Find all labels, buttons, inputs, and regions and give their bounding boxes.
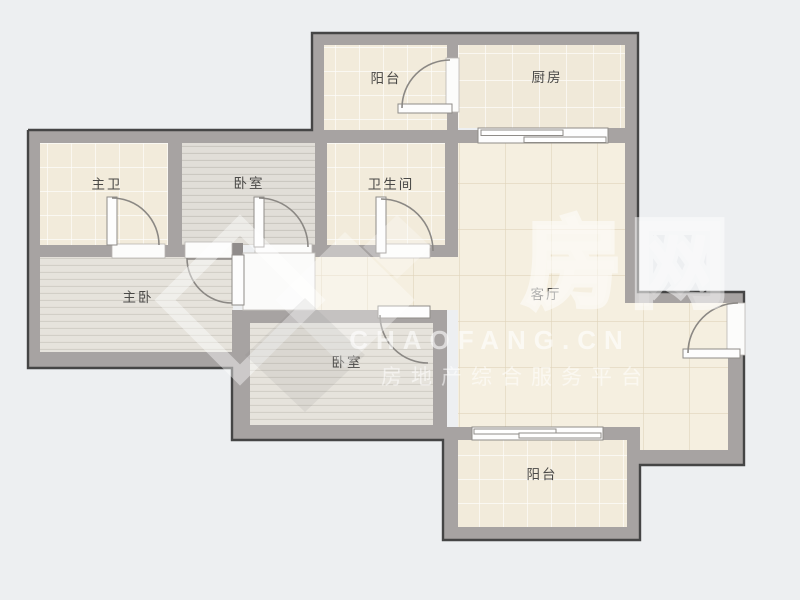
balcony-sliding-door [472, 427, 603, 440]
wall [443, 527, 640, 540]
balcony-top-door-leaf [398, 104, 452, 113]
slider-leaf [524, 137, 606, 143]
wall [627, 427, 640, 540]
watermark-domain: CHAOFANG.CN [349, 325, 631, 355]
floor-plan-page: 阳台 厨房 主卫 卧室 卫生间 客厅 主卧 卧室 阳台 房网 CHAOFANG.… [0, 0, 800, 600]
kitchen-sliding-door [478, 128, 608, 143]
wall [28, 130, 478, 143]
watermark-brand: 房网 [525, 212, 739, 318]
floor-plan-svg: 阳台 厨房 主卫 卧室 卫生间 客厅 主卧 卧室 阳台 房网 CHAOFANG.… [0, 0, 800, 600]
wall [445, 143, 458, 257]
wall [312, 33, 638, 45]
slider-leaf [481, 130, 563, 136]
wall [165, 245, 185, 257]
master-bedroom-door-leaf [232, 255, 244, 305]
room-label-balcony-top: 阳台 [371, 71, 402, 86]
room-label-bedroom-upper: 卧室 [234, 175, 265, 191]
room-label-bathroom: 卫生间 [368, 177, 415, 192]
room-label-kitchen: 厨房 [532, 70, 563, 85]
master-bathroom-doorway [112, 244, 165, 258]
kitchen-floor [458, 45, 625, 128]
slider-leaf [519, 433, 601, 438]
entry-door-leaf [683, 349, 740, 358]
room-label-master-bedroom: 主卧 [123, 290, 154, 305]
watermark-tagline: 房地产综合服务平台 [381, 366, 651, 389]
master-bathroom-door-leaf [107, 197, 117, 245]
wall [28, 352, 232, 368]
wall [608, 128, 638, 143]
balcony-top-floor [324, 45, 447, 130]
wall [443, 427, 458, 540]
wall [40, 245, 112, 257]
room-label-master-bathroom: 主卫 [92, 177, 123, 192]
master-bathroom-floor [40, 143, 168, 245]
room-label-balcony-lower: 阳台 [527, 467, 558, 482]
wall [232, 425, 447, 440]
balcony-lower-floor [458, 440, 627, 527]
wall [312, 45, 324, 130]
wall [315, 143, 327, 257]
wall [168, 143, 182, 257]
wall [430, 245, 458, 257]
wall [627, 450, 745, 465]
wall [28, 130, 40, 368]
